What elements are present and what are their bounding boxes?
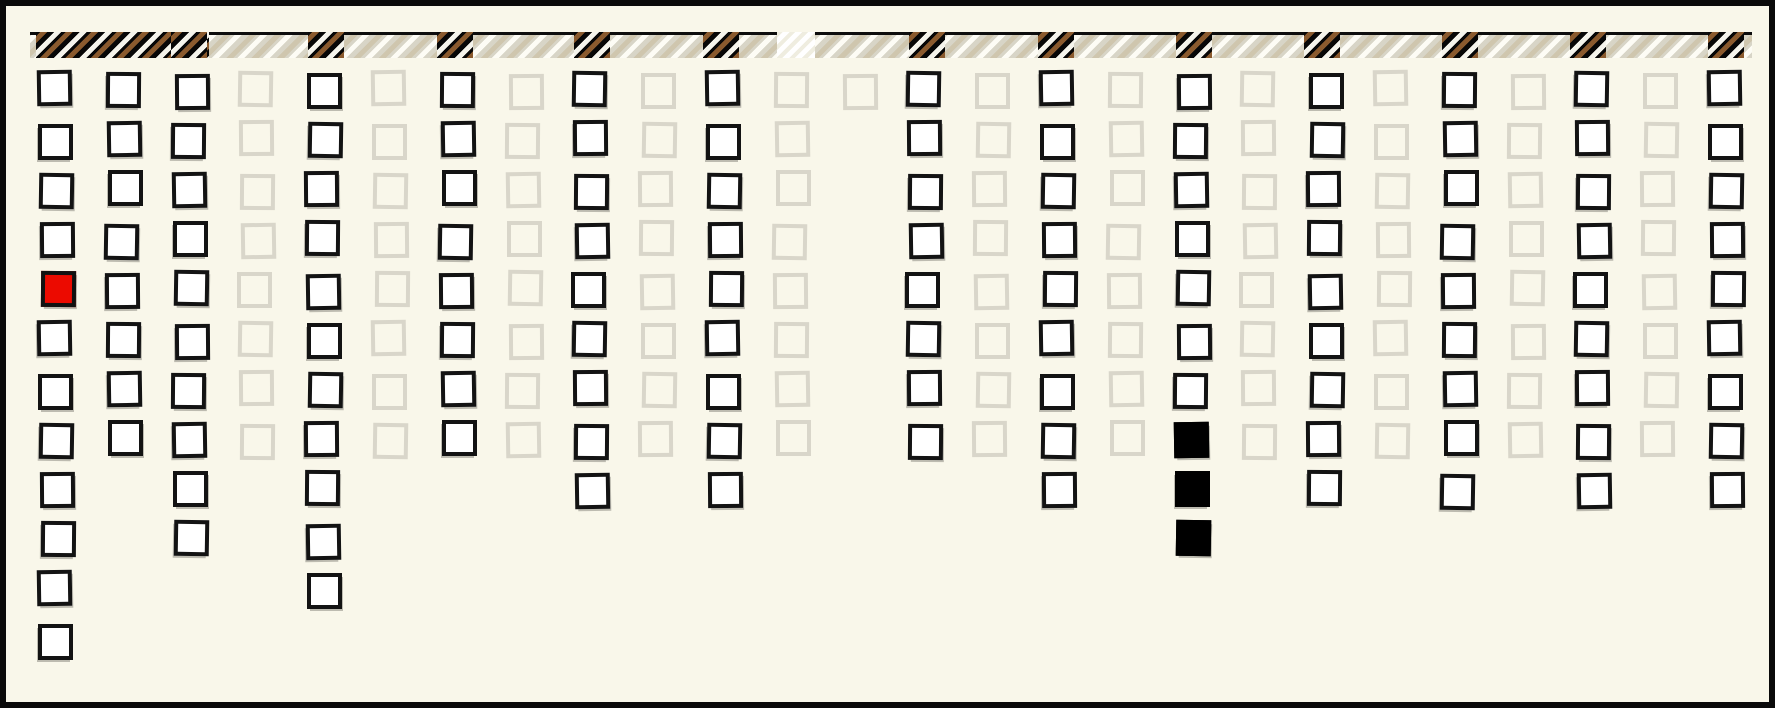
grid-cell [1042,472,1077,508]
grid-cell [304,421,339,457]
grid-cell [638,171,673,207]
grid-cell [641,73,676,109]
grid-cell [441,371,477,408]
grid-cell [1373,70,1409,107]
grid-cell [1041,423,1077,460]
grid-cell [1175,270,1211,307]
grid-cell [1644,122,1680,159]
grid-cell [708,222,743,258]
grid-cell [572,71,608,108]
grid-cell [1641,220,1676,256]
header-dark-segment [171,32,207,58]
grid-cell [108,420,143,456]
grid-cell [1576,174,1611,210]
grid-cell [708,472,743,508]
grid-cell [40,222,75,258]
header-dark-segment [574,32,610,58]
grid-cell [1108,72,1143,108]
grid-cell [508,74,543,110]
grid-cell [39,423,75,460]
grid-cell [640,274,676,311]
grid-cell [1440,224,1476,261]
grid-cell [305,470,340,506]
grid-cell [1308,274,1344,311]
grid-cell [38,624,73,660]
header-hatched-bar [30,32,1752,58]
grid-cell [1509,221,1544,257]
grid-cell [1042,222,1077,258]
grid-cell [774,72,809,108]
grid-cell [1172,373,1207,409]
grid-cell [1242,174,1277,210]
grid-cell [775,121,811,158]
grid-cell [1039,70,1075,107]
grid-cell [974,274,1010,311]
grid-cell [1577,473,1613,510]
grid-cell [907,370,942,406]
grid-cell [1240,71,1276,108]
grid-cell [972,171,1007,207]
grid-cell [373,173,409,210]
grid-cell [1640,421,1675,457]
header-dark-segment [1304,32,1340,58]
grid-cell [905,272,940,308]
grid-cell [906,71,942,108]
grid-cell [307,73,342,109]
grid-cell [705,70,741,107]
grid-cell [1506,123,1541,159]
grid-cell [1176,324,1211,360]
grid-cell [573,370,608,406]
grid-cell [308,372,344,409]
grid-cell [1507,172,1543,209]
grid-cell [1707,320,1743,357]
grid-cell [372,124,407,160]
grid-cell [706,374,741,410]
grid-cell [908,174,943,210]
grid-cell [1175,221,1210,257]
grid-cell [976,122,1012,159]
grid-cell [1110,170,1145,206]
grid-cell [575,223,611,260]
grid-cell [106,322,141,358]
grid-cell [441,121,477,158]
grid-cell [1575,370,1610,406]
grid-cell [571,272,606,308]
header-dark-segment [1570,32,1606,58]
grid-cell [1373,320,1409,357]
grid-cell [170,123,205,159]
grid-cell [174,324,209,360]
grid-cell [1506,373,1541,409]
header-bright-segment [777,32,815,58]
grid-cell [442,170,477,206]
grid-cell [305,220,340,256]
grid-cell [1374,374,1409,410]
grid-cell [574,174,609,210]
grid-cell [307,323,342,359]
sketch-grid-figure [0,0,1775,708]
grid-cell [1309,323,1344,359]
grid-cell [507,270,543,307]
grid-cell [706,124,741,160]
grid-cell [1643,323,1678,359]
grid-cell [1108,322,1143,358]
grid-cell [173,471,208,507]
grid-cell [776,170,811,206]
grid-cell [1573,272,1608,308]
grid-cell [37,570,73,607]
grid-cell [709,271,744,307]
grid-cell [1241,120,1276,156]
grid-cell [975,73,1010,109]
grid-cell [439,273,474,309]
grid-cell [239,370,274,406]
grid-cell [438,224,474,261]
grid-cell [105,273,140,309]
grid-cell [107,121,143,158]
grid-cell [1510,324,1545,360]
grid-cell [1040,124,1075,160]
grid-cell [1240,321,1276,358]
grid-cell [375,271,410,307]
grid-cell [1709,423,1745,460]
header-dark-segment [1442,32,1478,58]
grid-cell [1243,223,1279,260]
grid-cell [1041,173,1077,210]
grid-cell [976,372,1012,409]
grid-cell [308,122,344,159]
grid-cell [1442,322,1477,358]
grid-cell [1307,220,1342,256]
grid-cell [1310,122,1346,159]
grid-cell [1173,422,1209,459]
grid-cell [638,421,673,457]
grid-cell [505,422,541,459]
grid-cell [40,472,75,508]
grid-cell [1574,71,1610,108]
grid-cell [1711,271,1746,307]
header-dark-segment [1176,32,1212,58]
grid-cell [1577,223,1613,260]
grid-cell [1643,73,1678,109]
grid-cell [641,323,676,359]
grid-cell [1376,222,1411,258]
grid-cell [907,120,942,156]
grid-cell [37,70,73,107]
grid-cell [505,172,541,209]
grid-cell [41,521,76,557]
grid-cell [707,173,743,210]
grid-cell [371,70,407,107]
grid-cell [238,71,274,108]
grid-cell [374,222,409,258]
grid-cell [107,371,143,408]
grid-cell [1239,272,1274,308]
grid-cell [906,321,942,358]
grid-cell [774,322,809,358]
grid-cell [573,120,608,156]
grid-cell [1575,120,1610,156]
grid-cell [1242,424,1277,460]
grid-cell [1441,273,1476,309]
grid-cell [1040,374,1075,410]
grid-cell [1309,73,1344,109]
grid-cell [1106,224,1142,261]
grid-cell [373,423,409,460]
grid-cell [1576,424,1611,460]
grid-cell [1707,70,1743,107]
grid-cell [1708,124,1743,160]
grid-cell [1510,74,1545,110]
grid-cell [1175,471,1210,507]
header-dark-segment [909,32,945,58]
grid-cell [1509,270,1545,307]
grid-cell [1708,374,1743,410]
grid-cell [1310,372,1346,409]
grid-cell [442,420,477,456]
grid-cell [237,272,272,308]
grid-cell [842,74,877,110]
grid-cell [173,520,209,557]
header-dark-segment [703,32,739,58]
grid-cell [572,321,608,358]
grid-cell [306,524,342,561]
grid-cell [38,374,73,410]
grid-cell [575,473,611,510]
grid-cell [776,420,811,456]
grid-cell [1039,320,1075,357]
grid-cell [371,320,407,357]
grid-cell [909,223,945,260]
grid-cell [908,424,943,460]
grid-cell [642,372,678,409]
grid-cell [104,224,140,261]
grid-cell [508,324,543,360]
grid-cell [239,120,274,156]
grid-cell [1107,273,1142,309]
grid-cell [1444,170,1479,206]
grid-cell [174,74,209,110]
grid-cell [1175,520,1211,557]
grid-cell [1440,474,1476,511]
grid-cell [973,220,1008,256]
grid-cell [574,424,609,460]
grid-cell [1444,420,1479,456]
header-top-line [30,32,1752,35]
grid-cell [775,371,811,408]
grid-cell [1644,372,1680,409]
grid-cell [705,320,741,357]
grid-cell [504,123,539,159]
header-dark-segment [437,32,473,58]
grid-cell [173,221,208,257]
grid-cell [1375,423,1411,460]
grid-cell [307,573,342,609]
grid-cell [1110,420,1145,456]
grid-cell [1306,421,1341,457]
grid-cell [1574,321,1610,358]
grid-cell [173,270,209,307]
grid-cell [1710,222,1745,258]
grid-cell [642,122,678,159]
grid-cell [1443,121,1479,158]
grid-cell [171,172,207,209]
grid-cell [1710,472,1745,508]
header-dark-segment [308,32,344,58]
grid-cell [1709,173,1745,210]
grid-cell [1507,422,1543,459]
grid-cell [1109,371,1145,408]
grid-cell [1109,121,1145,158]
grid-cell [39,173,75,210]
grid-cell [41,271,76,307]
grid-cell [306,274,342,311]
grid-cell [1176,74,1211,110]
grid-cell [1374,124,1409,160]
grid-cell [504,373,539,409]
grid-cell [1442,72,1477,108]
grid-cell [1172,123,1207,159]
grid-cell [240,424,275,460]
grid-cell [639,220,674,256]
grid-cell [773,273,808,309]
grid-cell [108,170,143,206]
grid-cell [241,223,277,260]
grid-cell [170,373,205,409]
grid-cell [972,421,1007,457]
grid-cell [1443,371,1479,408]
grid-cell [240,174,275,210]
grid-cell [440,72,475,108]
grid-cell [1307,470,1342,506]
grid-cell [304,171,339,207]
grid-cell [1375,173,1411,210]
grid-cell [707,423,743,460]
grid-cell [1043,271,1078,307]
grid-cell [440,322,475,358]
grid-cell [975,323,1010,359]
grid-cell [772,224,808,261]
grid-cell [1642,274,1678,311]
grid-cell [1173,172,1209,209]
grid-cell [1241,370,1276,406]
grid-cell [38,124,73,160]
grid-cell [1640,171,1675,207]
header-dark-segment [1708,32,1744,58]
grid-cell [37,320,73,357]
grid-cell [238,321,274,358]
grid-cell [1377,271,1412,307]
grid-cell [372,374,407,410]
grid-cell [1306,171,1341,207]
grid-cell [106,72,141,108]
header-dark-segment [1038,32,1074,58]
grid-cell [507,221,542,257]
grid-cell [171,422,207,459]
